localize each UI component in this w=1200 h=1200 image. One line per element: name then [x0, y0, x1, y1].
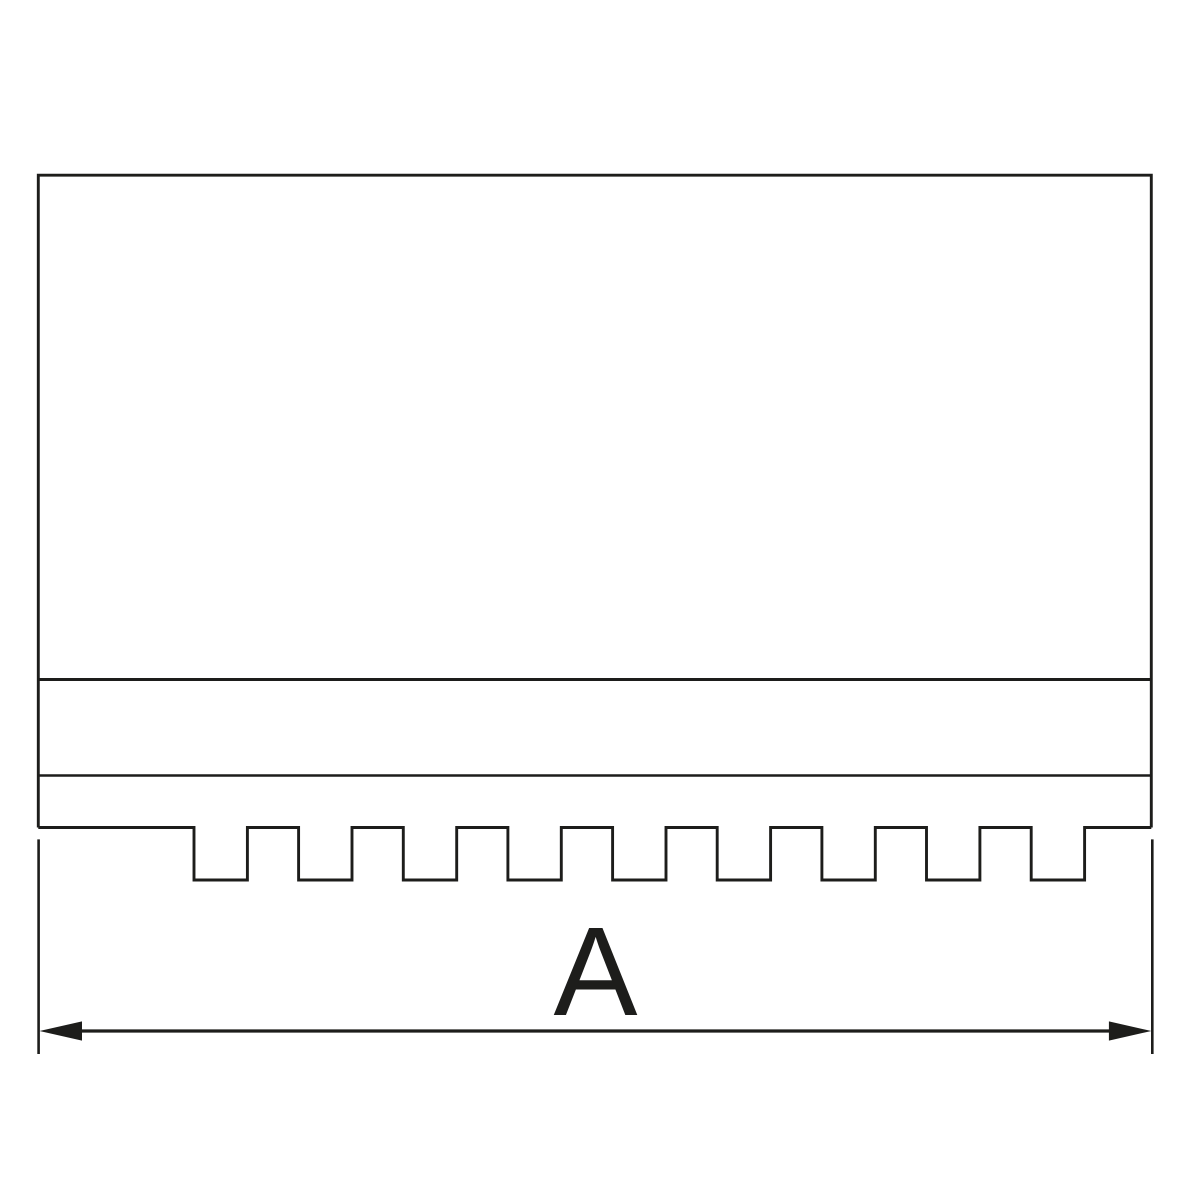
svg-text:A: A	[553, 901, 637, 1042]
